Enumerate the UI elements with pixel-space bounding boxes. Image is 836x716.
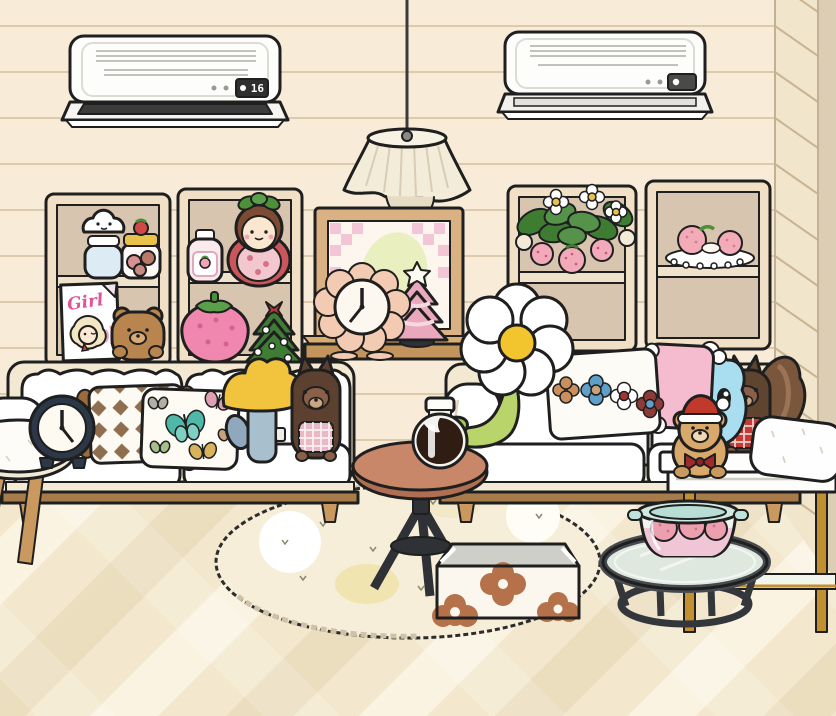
rug-spot [259, 511, 321, 573]
alarm-clock[interactable] [30, 396, 94, 468]
storage-box[interactable] [432, 544, 579, 627]
cloud-jar[interactable] [83, 210, 124, 278]
ac-vent [78, 104, 272, 114]
indicator-dot [212, 86, 217, 91]
rug-spot [335, 564, 399, 604]
indicator-dot [658, 80, 663, 85]
ac-display [668, 74, 696, 90]
indicator-dot [224, 86, 229, 91]
girl-magazine[interactable]: Girl [61, 283, 120, 361]
white-pillow[interactable] [749, 415, 836, 484]
indicator-dot [646, 80, 651, 85]
ac-right[interactable] [498, 32, 712, 119]
ac-left[interactable]: 16 [62, 36, 288, 127]
sofa-leg [766, 503, 782, 522]
pot-handle [628, 510, 642, 520]
sofa-leg [322, 503, 338, 522]
room-scene: 16 [0, 0, 836, 716]
teddy-bear[interactable] [112, 308, 164, 360]
pot-handle [734, 510, 748, 520]
ac-display: 16 [236, 79, 268, 97]
console-leg [816, 490, 827, 632]
sofa-leg [458, 503, 474, 522]
squirrel-plush[interactable] [292, 356, 340, 461]
ac-temp-readout: 16 [251, 82, 265, 95]
